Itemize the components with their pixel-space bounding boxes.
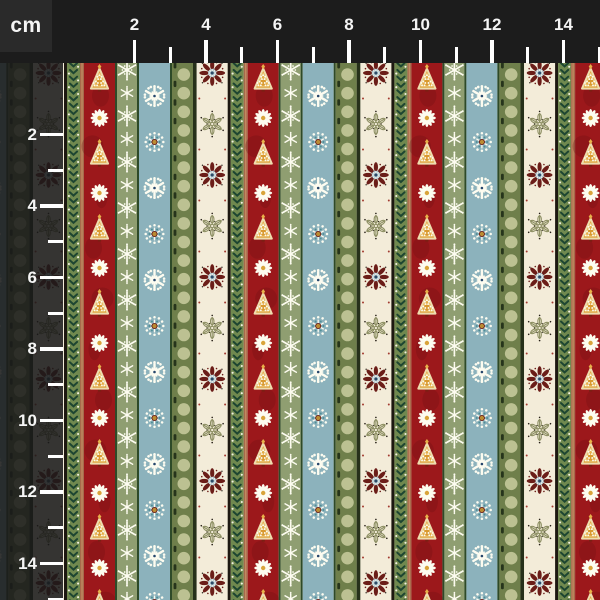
flake-tip-dot xyxy=(290,263,292,265)
medallion-petal xyxy=(379,71,389,75)
flake-center-dot xyxy=(317,95,320,98)
floret-petal xyxy=(103,459,105,461)
flake-between-dot xyxy=(131,69,133,71)
flake-tip-dot xyxy=(126,546,128,548)
separator-line xyxy=(357,0,361,600)
floret-center xyxy=(266,308,268,310)
medallion-petal xyxy=(363,581,373,585)
floret-petal xyxy=(260,76,262,78)
daisy-center xyxy=(261,266,265,270)
separator-line xyxy=(279,0,281,600)
ring-dot xyxy=(153,500,156,503)
floret-petal xyxy=(259,156,261,158)
daisy-center xyxy=(261,341,265,345)
floret-petal xyxy=(94,159,96,161)
flake-tip-dot xyxy=(290,191,292,193)
medallion-petal xyxy=(199,581,209,585)
flake-between-dot xyxy=(294,207,296,209)
flake-between-dot xyxy=(294,253,296,255)
floret-petal xyxy=(95,156,97,158)
flake-center xyxy=(152,415,157,420)
medallion-petal xyxy=(374,468,378,478)
center-ring-dot xyxy=(375,273,377,275)
floret-center xyxy=(259,383,261,385)
floret-petal xyxy=(100,157,102,159)
floret-center xyxy=(95,308,97,310)
floret-petal xyxy=(94,459,96,461)
flake-center xyxy=(290,253,292,255)
edge-dot xyxy=(77,175,79,177)
edge-dot xyxy=(232,399,234,401)
dash-mark xyxy=(337,285,340,291)
poinsettia-medallion-motif xyxy=(199,366,225,392)
floret-petal xyxy=(100,153,102,155)
center-ring-dot xyxy=(209,72,211,74)
floret-center xyxy=(259,233,261,235)
floret-center xyxy=(102,383,104,385)
ring-dot xyxy=(317,592,320,595)
flake-center xyxy=(316,323,321,328)
edge-dot xyxy=(241,311,243,313)
ring-dot xyxy=(162,417,165,420)
floret-center xyxy=(102,83,104,85)
flake-tip-dot xyxy=(126,99,128,101)
edge-dot xyxy=(68,399,70,401)
flake-tip-dot xyxy=(126,178,128,180)
medallion-petal xyxy=(363,275,373,279)
flake-tip-dot xyxy=(290,421,292,423)
flake-between-dot xyxy=(294,161,296,163)
center-ring-dot xyxy=(214,582,216,584)
flake-between-dot xyxy=(294,391,296,393)
floret-petal xyxy=(268,382,270,384)
dash-mark xyxy=(174,118,177,124)
edge-dot xyxy=(68,209,70,211)
edge-dot xyxy=(68,113,70,115)
edge-dot xyxy=(241,487,243,489)
polka-dot xyxy=(341,180,354,193)
edge-dot xyxy=(68,141,70,143)
edge-dot xyxy=(77,107,79,109)
flake-center xyxy=(290,161,292,163)
wire-tip-dot xyxy=(375,519,377,521)
dash-mark xyxy=(337,416,340,422)
edge-dot xyxy=(77,433,79,435)
poinsettia-medallion-motif xyxy=(363,366,389,392)
edge-red-dot xyxy=(224,200,226,202)
flake-center xyxy=(126,207,128,209)
medallion-center-dot xyxy=(211,72,214,75)
floret-petal xyxy=(97,532,99,534)
ring-dot xyxy=(144,141,147,144)
edge-dot xyxy=(232,549,234,551)
medallion-petal xyxy=(199,275,209,279)
edge-dot xyxy=(77,202,79,204)
flake-between-dot xyxy=(122,299,124,301)
polka-dot xyxy=(341,68,354,81)
floret-petal xyxy=(261,528,263,530)
arm-fan-dot xyxy=(317,453,320,456)
floret-petal xyxy=(263,453,265,455)
arm-fan-dot xyxy=(317,564,320,567)
medallion-petal xyxy=(199,71,209,75)
ring-dot xyxy=(308,325,311,328)
floret-petal xyxy=(97,228,99,230)
center-ring-dot xyxy=(375,279,377,281)
floret-petal xyxy=(97,451,99,453)
center-ring-dot xyxy=(211,75,213,77)
edge-dot xyxy=(77,270,79,272)
flake-center-dot xyxy=(317,555,320,558)
floret-petal xyxy=(103,384,105,386)
floret-petal xyxy=(97,226,99,228)
flake-between-dot xyxy=(294,483,296,485)
floret-petal xyxy=(99,524,101,526)
arm-fan-dot xyxy=(153,380,156,383)
wire-tip-dot xyxy=(375,417,377,419)
edge-dot xyxy=(68,73,70,75)
flake-center xyxy=(126,115,128,117)
ring-dot xyxy=(162,233,165,236)
separator-line xyxy=(334,0,336,600)
teal-dot xyxy=(312,509,314,511)
edge-dot xyxy=(68,181,70,183)
floret-petal xyxy=(264,157,266,159)
medallion-center-dot xyxy=(211,174,214,177)
edge-dot xyxy=(68,385,70,387)
center-ring-dot xyxy=(214,72,216,74)
flake-between-dot xyxy=(294,345,296,347)
edge-red-dot xyxy=(224,506,226,508)
medallion-petal xyxy=(363,173,373,177)
edge-dot xyxy=(77,215,79,217)
polka-dot xyxy=(178,385,191,398)
dash-mark xyxy=(337,341,340,347)
polka-dot xyxy=(178,273,191,286)
poinsettia-medallion-motif xyxy=(199,468,225,494)
floret-petal xyxy=(96,534,98,536)
center-ring-dot xyxy=(211,381,213,383)
separator-line xyxy=(170,0,172,600)
edge-dot xyxy=(77,501,79,503)
teal-dot xyxy=(322,233,324,235)
dash-mark xyxy=(174,192,177,198)
floret-petal xyxy=(259,456,261,458)
flake-center xyxy=(126,161,128,163)
flake-tip-dot xyxy=(126,86,128,88)
floret-center xyxy=(262,377,264,379)
dash-mark xyxy=(174,248,177,254)
wire-tip-dot xyxy=(211,238,213,240)
edge-dot xyxy=(77,283,79,285)
dash-mark xyxy=(337,248,340,254)
polka-dot xyxy=(341,478,354,491)
polka-dot xyxy=(178,366,191,379)
wire-tip-dot xyxy=(211,519,213,521)
floret-petal xyxy=(95,531,97,533)
flake-tip-dot xyxy=(126,329,128,331)
edge-dot xyxy=(68,453,70,455)
flake-between-dot xyxy=(131,299,133,301)
polka-dot-stripe xyxy=(172,0,193,600)
flake-tip-dot xyxy=(126,467,128,469)
floret-petal xyxy=(104,382,106,384)
flake-tip-dot xyxy=(290,355,292,357)
floret-petal xyxy=(257,307,259,309)
dash-mark xyxy=(337,509,340,515)
teal-dot xyxy=(312,325,314,327)
edge-red-dot xyxy=(224,251,226,253)
floret-center xyxy=(266,158,268,160)
dash-mark xyxy=(337,527,340,533)
dash-mark xyxy=(174,211,177,217)
dash-mark xyxy=(174,155,177,161)
ring-dot xyxy=(317,316,320,319)
edge-dot xyxy=(77,256,79,258)
edge-dot xyxy=(68,358,70,360)
flake-tip-dot xyxy=(126,585,128,587)
flake-tip-dot xyxy=(126,454,128,456)
polka-dot xyxy=(178,143,191,156)
wire-tip-dot xyxy=(211,111,213,113)
floret-petal xyxy=(104,232,106,234)
flake-between-dot xyxy=(294,437,296,439)
floret-petal xyxy=(97,76,99,78)
floret-petal xyxy=(268,532,270,534)
flake-tip-dot xyxy=(126,105,128,107)
arm-fan-dot xyxy=(153,85,156,88)
separator-line-bg xyxy=(334,0,336,600)
polka-dot xyxy=(341,106,354,119)
medallion-petal xyxy=(363,71,373,75)
floret-petal xyxy=(268,157,270,159)
ring-dot xyxy=(317,408,320,411)
flake-between-dot xyxy=(285,253,287,255)
center-ring-dot xyxy=(211,585,213,587)
polka-dot xyxy=(341,496,354,509)
floret-petal xyxy=(96,309,98,311)
dash-mark xyxy=(174,527,177,533)
flake-between-dot xyxy=(122,391,124,393)
floret-petal xyxy=(96,384,98,386)
edge-red-dot xyxy=(224,98,226,100)
floret-petal xyxy=(101,376,103,378)
edge-dot xyxy=(68,154,70,156)
edge-dot xyxy=(68,249,70,251)
polka-dot xyxy=(178,496,191,509)
flake-tip-dot xyxy=(290,224,292,226)
polka-dot xyxy=(341,236,354,249)
floret-petal xyxy=(99,224,101,226)
teal-dot xyxy=(322,325,324,327)
polka-dot xyxy=(178,459,191,472)
arm-fan-dot xyxy=(153,545,156,548)
floret-petal xyxy=(265,234,267,236)
center-ring-dot xyxy=(378,378,380,380)
floret-petal xyxy=(100,528,102,530)
flake-center-dot xyxy=(153,371,156,374)
edge-dot xyxy=(68,589,70,591)
floret-petal xyxy=(267,459,269,461)
edge-dot xyxy=(241,229,243,231)
daisy-center xyxy=(97,191,101,195)
edge-dot xyxy=(68,290,70,292)
floret-petal xyxy=(261,232,263,234)
edge-dot xyxy=(77,93,79,95)
floret-petal xyxy=(103,234,105,236)
ring-dot xyxy=(326,417,329,420)
medallion-petal xyxy=(374,76,378,86)
poinsettia-medallion-motif xyxy=(199,264,225,290)
floret-petal xyxy=(100,82,102,84)
edge-dot xyxy=(77,487,79,489)
center-ring-dot xyxy=(378,174,380,176)
floret-petal xyxy=(102,381,104,383)
flake-between-dot xyxy=(122,69,124,71)
arm-fan-dot xyxy=(153,269,156,272)
floret-center xyxy=(266,83,268,85)
cream-medallion-stripe xyxy=(197,0,228,600)
edge-red-dot xyxy=(224,149,226,151)
flake-center xyxy=(126,253,128,255)
floret-petal xyxy=(265,384,267,386)
edge-dot xyxy=(68,481,70,483)
dash-mark xyxy=(174,416,177,422)
ring-dot xyxy=(144,325,147,328)
center-ring-dot xyxy=(378,582,380,584)
edge-red-dot xyxy=(224,353,226,355)
floret-center xyxy=(99,377,101,379)
separator-line-bg xyxy=(137,0,139,600)
ring-dot xyxy=(153,334,156,337)
flake-between-dot xyxy=(122,115,124,117)
flake-tip-dot xyxy=(126,473,128,475)
floret-center xyxy=(262,77,264,79)
floret-petal xyxy=(264,451,266,453)
floret-petal xyxy=(101,234,103,236)
floret-petal xyxy=(97,303,99,305)
flake-tip-dot xyxy=(290,329,292,331)
flake-tip-dot xyxy=(126,263,128,265)
ring-dot xyxy=(317,426,320,429)
medallion-petal xyxy=(379,479,389,483)
dash-mark xyxy=(337,546,340,552)
ring-dot xyxy=(317,132,320,135)
floret-petal xyxy=(259,381,261,383)
edge-dot xyxy=(68,168,70,170)
center-ring-dot xyxy=(375,69,377,71)
polka-dot xyxy=(178,533,191,546)
floret-petal xyxy=(260,309,262,311)
floret-center xyxy=(95,458,97,460)
center-ring-dot xyxy=(372,72,374,74)
edge-dot xyxy=(241,419,243,421)
flake-between-dot xyxy=(285,69,287,71)
dash-mark xyxy=(337,192,340,198)
floret-petal xyxy=(93,307,95,309)
flake-tip-dot xyxy=(126,539,128,541)
dash-mark xyxy=(337,471,340,477)
edge-dot xyxy=(68,372,70,374)
floret-petal xyxy=(100,457,102,459)
floret-petal xyxy=(95,306,97,308)
dash-mark xyxy=(174,323,177,329)
polka-dot xyxy=(178,571,191,584)
flake-tip-dot xyxy=(126,362,128,364)
flake-tip-dot xyxy=(290,283,292,285)
edge-dot xyxy=(77,555,79,557)
texture-mottle xyxy=(252,541,269,563)
flake-tip-dot xyxy=(290,125,292,127)
floret-petal xyxy=(260,226,262,228)
medallion-center-dot xyxy=(374,480,377,483)
floret-petal xyxy=(263,78,265,80)
edge-red-dot xyxy=(198,251,200,253)
polka-dot xyxy=(178,440,191,453)
dash-mark xyxy=(337,174,340,180)
center-ring-dot xyxy=(375,375,377,377)
polka-dot xyxy=(178,329,191,342)
wire-tip-dot xyxy=(375,238,377,240)
medallion-petal xyxy=(374,586,378,596)
edge-dot xyxy=(68,277,70,279)
medallion-petal xyxy=(215,173,225,177)
polka-dot xyxy=(341,422,354,435)
medallion-petal xyxy=(374,484,378,494)
edge-dot xyxy=(241,324,243,326)
flake-tip-dot xyxy=(126,309,128,311)
floret-petal xyxy=(261,532,263,534)
ring-dot xyxy=(308,417,311,420)
ring-dot xyxy=(308,233,311,236)
flake-center xyxy=(126,483,128,485)
wire-tip-dot xyxy=(211,544,213,546)
flake-between-dot xyxy=(294,299,296,301)
ring-dot xyxy=(144,509,147,512)
edge-dot xyxy=(68,562,70,564)
medallion-center-dot xyxy=(374,174,377,177)
center-ring-dot xyxy=(375,381,377,383)
floret-center xyxy=(102,308,104,310)
flake-tip-dot xyxy=(290,493,292,495)
floret-petal xyxy=(257,384,259,386)
medallion-petal xyxy=(215,377,225,381)
teal-dot xyxy=(159,509,161,511)
separator-line xyxy=(115,0,117,600)
floret-center xyxy=(99,527,101,529)
flake-tip-dot xyxy=(126,270,128,272)
medallion-petal xyxy=(210,484,214,494)
floret-petal xyxy=(101,76,103,78)
center-ring-dot xyxy=(211,579,213,581)
edge-dot xyxy=(232,413,234,415)
edge-dot xyxy=(241,542,243,544)
edge-dot xyxy=(68,100,70,102)
edge-dot xyxy=(241,270,243,272)
center-ring-dot xyxy=(211,177,213,179)
dash-mark xyxy=(174,509,177,515)
flake-tip-dot xyxy=(126,592,128,594)
flake-tip-dot xyxy=(290,151,292,153)
edge-dot xyxy=(77,542,79,544)
olive-snowflake-stripe xyxy=(117,0,137,600)
flake-center xyxy=(290,483,292,485)
floret-petal xyxy=(104,532,106,534)
edge-dot xyxy=(232,222,234,224)
dash-mark xyxy=(174,583,177,589)
edge-dot xyxy=(241,93,243,95)
arm-fan-dot xyxy=(153,453,156,456)
